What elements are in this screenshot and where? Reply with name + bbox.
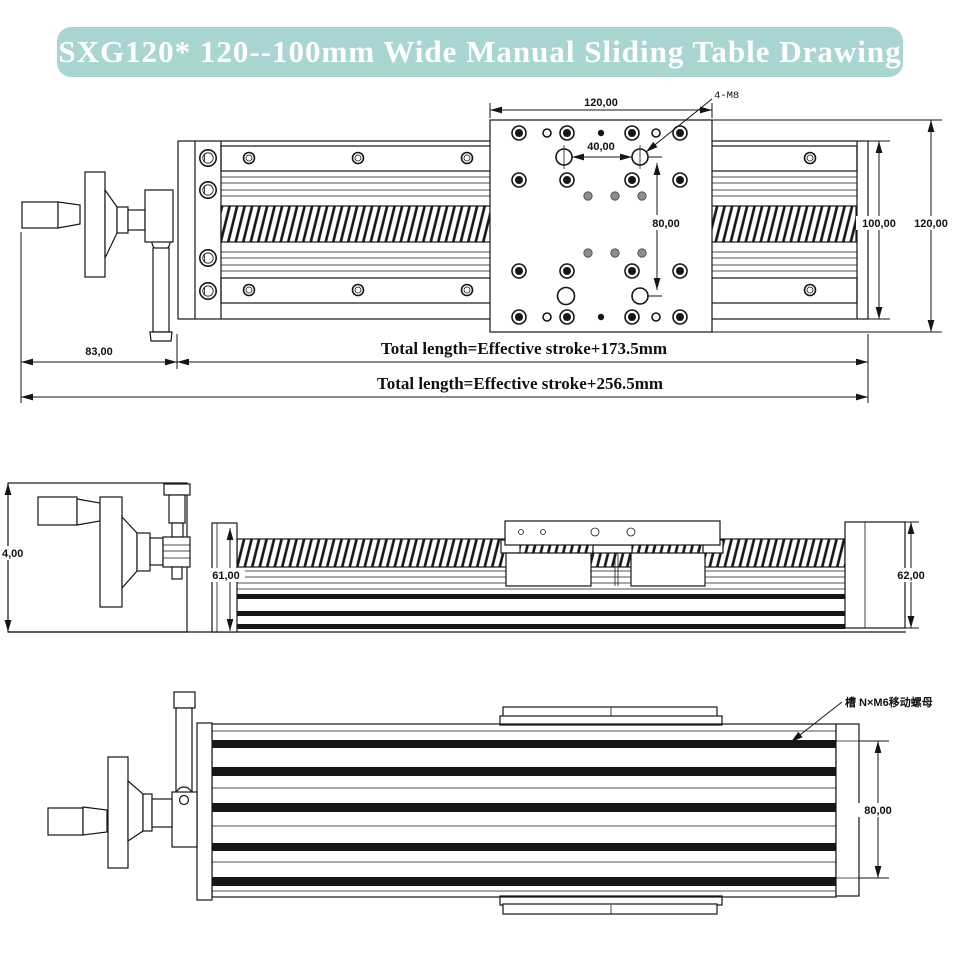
lever-bracket — [145, 190, 173, 242]
dim-hole-pitch-y-label: 80,00 — [652, 218, 680, 230]
handwheel-disc — [100, 497, 122, 607]
handwheel-bottom-view — [48, 692, 197, 868]
t-slot — [212, 740, 836, 748]
dim-end-height-label: 62,00 — [897, 570, 925, 582]
technical-drawing-canvas: 120,00 4-M8 40,00 80,00 100,00 — [0, 0, 960, 960]
slot-label: 槽 N×M6移动螺母 — [845, 695, 933, 709]
dim-hole-pitch-x-label: 40,00 — [587, 141, 615, 153]
dim-plate-width-label: 120,00 — [584, 97, 618, 109]
side-view: 4,00 61,00 62,00 — [0, 483, 932, 632]
end-cap-right — [836, 724, 859, 896]
end-plate-screws — [200, 150, 216, 299]
mount-holes-label: 4-M8 — [714, 90, 739, 102]
nut-block-left — [506, 553, 591, 586]
crank-grip — [38, 497, 77, 525]
carriage-side-view — [501, 521, 723, 586]
dim-handle-length-label: 83,00 — [85, 346, 113, 358]
dim-plate-width: 120,00 — [490, 97, 712, 118]
dim-body-width: 100,00 — [856, 141, 902, 319]
dim-total-length-short: Total length=Effective stroke+173.5mm — [177, 339, 868, 362]
handwheel-top-view — [22, 172, 173, 341]
nut-block-right — [631, 553, 705, 586]
slot-callout: 槽 N×M6移动螺母 — [791, 695, 933, 742]
dim-slide-width-label: 80,00 — [864, 805, 892, 817]
handwheel-side-view — [38, 484, 190, 607]
total-length-short-label: Total length=Effective stroke+173.5mm — [381, 339, 667, 358]
bottom-view: 槽 N×M6移动螺母 80,00 — [48, 692, 933, 914]
dim-body-width-label: 100,00 — [862, 218, 896, 230]
clamp-block — [163, 537, 190, 567]
dim-slide-width: 80,00 — [858, 741, 898, 878]
lock-lever — [169, 495, 185, 523]
carriage-plate-side — [505, 521, 720, 545]
t-slot — [212, 803, 836, 812]
handwheel-disc — [108, 757, 128, 868]
dim-left-height: 4,00 — [0, 483, 27, 632]
lock-lever-cap — [174, 692, 195, 708]
title-banner: SXG120* 120--100mm Wide Manual Sliding T… — [57, 27, 903, 77]
page-title: SXG120* 120--100mm Wide Manual Sliding T… — [58, 34, 901, 70]
dim-left-height-label: 4,00 — [2, 548, 23, 560]
lock-lever-cap — [164, 484, 190, 495]
end-plate-left — [197, 723, 212, 900]
crank-grip — [48, 808, 83, 835]
t-slot — [212, 767, 836, 776]
handwheel-disc — [85, 172, 105, 277]
dim-plate-height-label: 120,00 — [914, 218, 948, 230]
slide-body-bottom-view — [197, 723, 859, 900]
lock-lever — [153, 248, 169, 332]
t-slot — [212, 843, 836, 851]
lock-lever — [176, 708, 192, 793]
dim-total-length-long: Total length=Effective stroke+256.5mm — [21, 374, 868, 397]
crank-grip — [22, 202, 58, 228]
total-length-long-label: Total length=Effective stroke+256.5mm — [377, 374, 663, 393]
top-view: 120,00 4-M8 40,00 80,00 100,00 — [21, 90, 954, 403]
t-slot — [212, 877, 836, 886]
dim-body-height-label: 61,00 — [212, 570, 240, 582]
